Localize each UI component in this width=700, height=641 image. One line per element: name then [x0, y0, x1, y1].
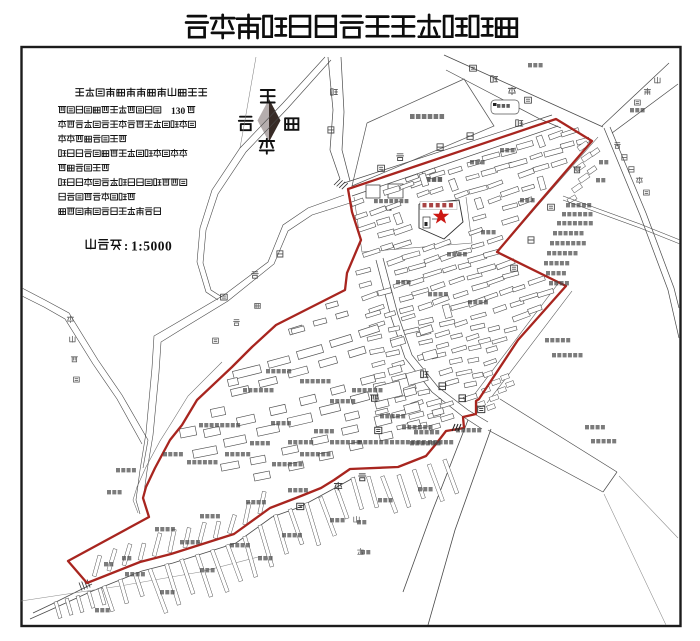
svg-text::: : [124, 239, 128, 253]
svg-text:1:5000: 1:5000 [131, 239, 172, 254]
svg-text:130: 130 [171, 107, 186, 117]
